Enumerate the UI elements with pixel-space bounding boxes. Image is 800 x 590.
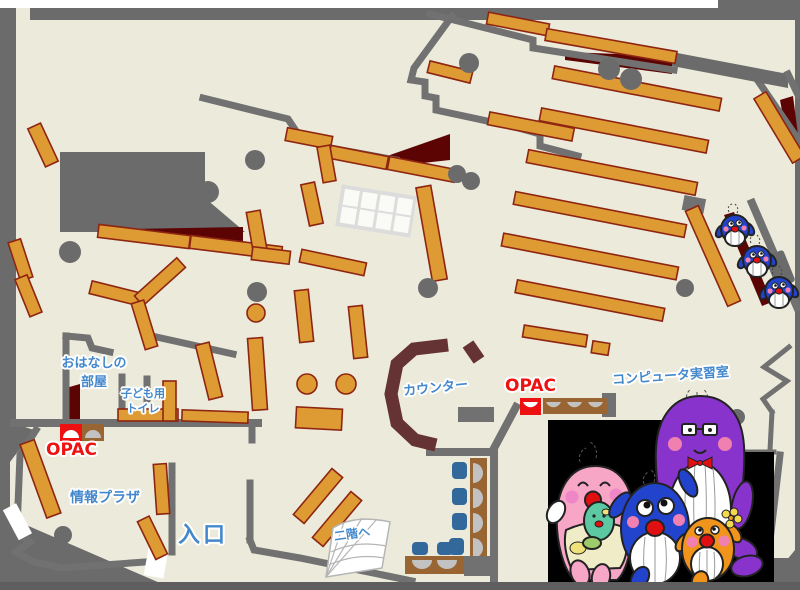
label-info-plaza: 情報プラザ: [70, 487, 140, 507]
label-kids-toilet: 子ども用 トイレ: [112, 386, 174, 416]
library-floor-map: おはなしの 部屋 子ども用 トイレ OPAC 情報プラザ 入口 カウンター OP…: [0, 0, 800, 590]
opac-station-left: [60, 424, 104, 441]
opac-station-right: [520, 398, 607, 415]
top-white-strip: [0, 0, 718, 8]
top-wall-bar: [30, 8, 795, 20]
label-entrance: 入口: [178, 517, 228, 549]
bottom-border: [0, 582, 800, 590]
label-opac-right: OPAC: [505, 376, 556, 396]
label-opac-left: OPAC: [46, 440, 97, 460]
